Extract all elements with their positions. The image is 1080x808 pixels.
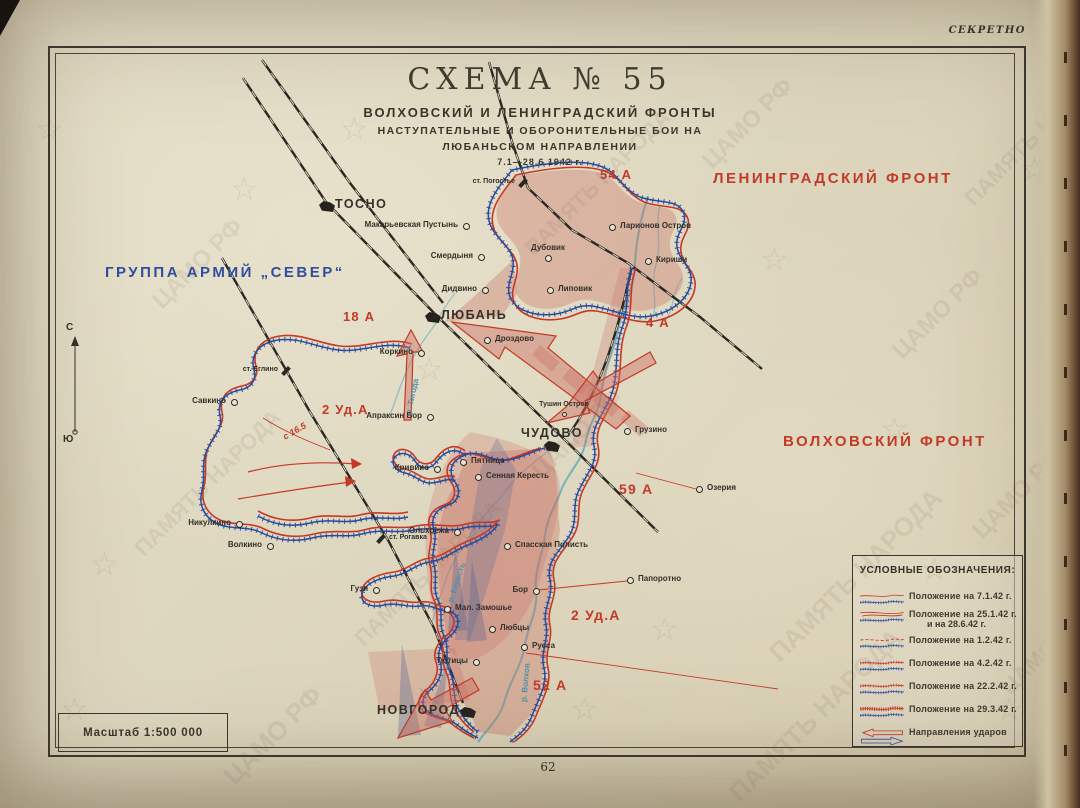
town-label: Макарьевская Пустынь xyxy=(365,220,458,229)
town-label: Любцы xyxy=(500,623,529,632)
town-label: Сенная Кересть xyxy=(486,471,549,480)
town-label: ЛЮБАНЬ xyxy=(441,308,507,322)
settlement-dot xyxy=(434,466,441,473)
front-title: ЛЕНИНГРАДСКИЙ ФРОНТ xyxy=(713,170,953,187)
scale-box: Масштаб 1:500 000 xyxy=(58,713,228,752)
town-label: Пятница xyxy=(471,456,505,465)
title-fronts-line: ВОЛХОВСКИЙ И ЛЕНИНГРАДСКИЙ ФРОНТЫ xyxy=(0,105,1080,120)
legend-symbol-s7 xyxy=(859,724,905,748)
settlement-dot xyxy=(463,223,470,230)
settlement-dot xyxy=(427,414,434,421)
secret-stamp: СЕКРЕТНО xyxy=(949,25,1026,36)
town-label: Ларионов Остров xyxy=(620,221,691,230)
settlement-dot xyxy=(475,474,482,481)
legend-item-label-line2: и на 28.6.42 г. xyxy=(927,619,986,629)
settlement-dot xyxy=(521,644,528,651)
legend-symbol-s2 xyxy=(859,606,905,630)
settlement-dot xyxy=(418,350,425,357)
compass-arrow xyxy=(66,336,86,446)
settlement-dot xyxy=(454,529,461,536)
binding-stitches xyxy=(1064,0,1067,808)
town-label: ТОСНО xyxy=(335,197,387,211)
legend-title: УСЛОВНЫЕ ОБОЗНАЧЕНИЯ: xyxy=(853,565,1022,576)
settlement-dot xyxy=(547,287,554,294)
town-label: Мал. Замошье xyxy=(455,603,512,612)
town-label: Тушин Остров xyxy=(539,401,589,408)
legend-symbol-s4 xyxy=(859,655,905,679)
scale-label: Масштаб 1:500 000 xyxy=(83,727,203,739)
front-title: ВОЛХОВСКИЙ ФРОНТ xyxy=(783,433,987,450)
settlement-dot xyxy=(562,412,567,417)
legend-item: Положение на 4.2.42 г. xyxy=(853,655,1022,679)
army-label: 54 А xyxy=(600,167,632,182)
settlement-dot xyxy=(696,486,703,493)
town-label: Липовик xyxy=(558,284,592,293)
settlement-dot xyxy=(627,577,634,584)
legend-item-label: Положение на 4.2.42 г. xyxy=(909,658,1012,668)
town-label: Папоротно xyxy=(638,574,681,583)
settlement-dot xyxy=(624,428,631,435)
legend-item-label: Положение на 29.3.42 г. xyxy=(909,704,1017,714)
settlement-dot xyxy=(236,521,243,528)
town-label: Апраксин Бор xyxy=(366,411,422,420)
legend-item: Положение на 22.2.42 г. xyxy=(853,678,1022,702)
town-label: Дидвино xyxy=(442,284,477,293)
legend-box: УСЛОВНЫЕ ОБОЗНАЧЕНИЯ: Положение на 7.1.4… xyxy=(852,555,1023,747)
town-label: Смердыня xyxy=(431,251,473,260)
settlement-dot xyxy=(489,626,496,633)
town-label: Никулкино xyxy=(188,518,231,527)
settlement-dot xyxy=(482,287,489,294)
front-title: ГРУППА АРМИЙ „СЕВЕР“ xyxy=(105,264,345,281)
legend-item: Направления ударов xyxy=(853,724,1022,748)
town-label: Дубовик xyxy=(531,243,565,252)
town-label: Дроздово xyxy=(495,334,534,343)
town-label: Волкино xyxy=(228,540,262,549)
page-number: 62 xyxy=(528,760,568,774)
army-label: 52 А xyxy=(533,677,567,693)
title-battles-line: НАСТУПАТЕЛЬНЫЕ И ОБОРОНИТЕЛЬНЫЕ БОИ НА xyxy=(0,125,1080,137)
army-label: 2 Уд.А xyxy=(322,402,369,417)
legend-item-label: Направления ударов xyxy=(909,727,1007,737)
settlement-dot xyxy=(533,588,540,595)
town-label: ст. Рогавка xyxy=(389,534,427,541)
army-label: 2 Уд.А xyxy=(571,607,621,623)
legend-symbol-s3 xyxy=(859,632,905,656)
town-label: Савкино xyxy=(192,396,226,405)
town-label: Русса xyxy=(532,641,555,650)
town-label: Грузино xyxy=(635,425,667,434)
town-label: ст. Еглино xyxy=(243,366,278,373)
town-label: Коркино xyxy=(380,347,413,356)
settlement-dot xyxy=(504,543,511,550)
title-direction-line: ЛЮБАНЬСКОМ НАПРАВЛЕНИИ xyxy=(0,141,1080,153)
settlement-dot xyxy=(484,337,491,344)
settlement-dot xyxy=(609,224,616,231)
settlement-dot xyxy=(645,258,652,265)
town-label: Кириши xyxy=(656,255,687,264)
town-label: Кривино xyxy=(395,463,429,472)
legend-item-label: Положение на 22.2.42 г. xyxy=(909,681,1017,691)
settlement-dot xyxy=(267,543,274,550)
army-label: 59 А xyxy=(619,481,653,497)
town-label: Бор xyxy=(512,585,528,594)
compass-north-label: С xyxy=(66,322,73,333)
town-label: Спасская Полисть xyxy=(515,540,588,549)
town-label: ст. Погостье xyxy=(473,178,515,185)
compass-south-label: Ю xyxy=(63,434,73,445)
legend-item: Положение на 25.1.42 г.и на 28.6.42 г. xyxy=(853,606,1022,630)
legend-item: Положение на 29.3.42 г. xyxy=(853,701,1022,725)
town-label: Гузи xyxy=(351,584,368,593)
settlement-dot xyxy=(460,459,467,466)
settlement-dot xyxy=(545,255,552,262)
town-label: ЧУДОВО xyxy=(521,426,583,440)
title-block: СХЕМА № 55 ВОЛХОВСКИЙ И ЛЕНИНГРАДСКИЙ ФР… xyxy=(0,62,1080,167)
settlement-dot xyxy=(478,254,485,261)
settlement-dot xyxy=(231,399,238,406)
book-binding-edge xyxy=(1034,0,1080,808)
schema-title: СХЕМА № 55 xyxy=(0,62,1080,97)
town-label: Тютицы xyxy=(436,656,468,665)
town-label: Озерия xyxy=(707,483,736,492)
legend-symbol-s6 xyxy=(859,701,905,725)
settlement-dot xyxy=(373,587,380,594)
legend-item-label: Положение на 25.1.42 г. xyxy=(909,609,1017,619)
legend-symbol-s5 xyxy=(859,678,905,702)
legend-item: Положение на 1.2.42 г. xyxy=(853,632,1022,656)
settlement-dot xyxy=(473,659,480,666)
title-dates-line: 7.1—28.6.1942 г. xyxy=(0,157,1080,167)
town-label: НОВГОРОД xyxy=(377,703,460,717)
settlement-dot xyxy=(444,606,451,613)
army-label: 18 А xyxy=(343,309,375,324)
army-label: 4 А xyxy=(646,315,670,330)
legend-item-label: Положение на 1.2.42 г. xyxy=(909,635,1012,645)
legend-item-label: Положение на 7.1.42 г. xyxy=(909,591,1012,601)
